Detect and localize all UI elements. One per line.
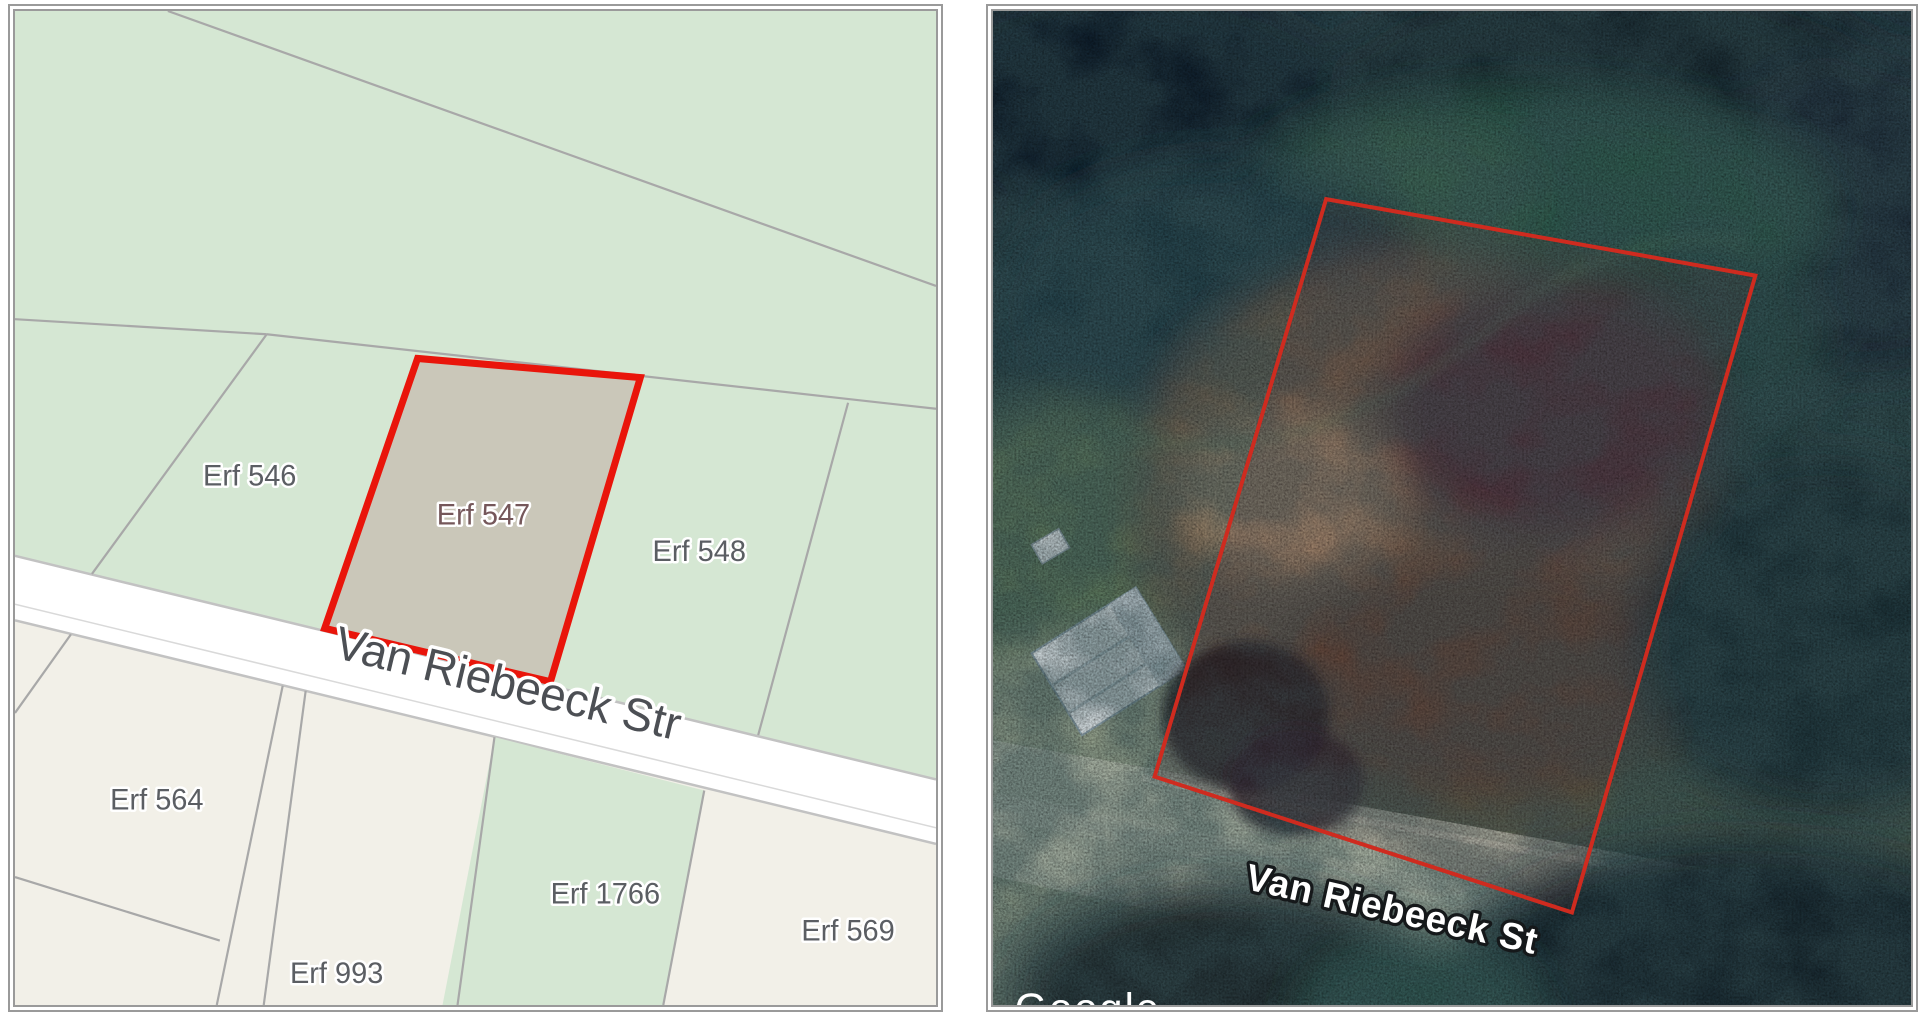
parcel-label-erf-547: Erf 547: [437, 500, 530, 532]
parcel-label-erf-546: Erf 546: [203, 460, 296, 492]
google-watermark: Google: [1015, 985, 1161, 1005]
cadastral-map-image: Erf 546 Erf 547 Erf 548 Erf 564 Erf 993 …: [15, 11, 936, 1005]
parcel-label-erf-548: Erf 548: [653, 536, 746, 568]
parcel-label-erf-569: Erf 569: [801, 915, 894, 947]
parcel-label-erf-993: Erf 993: [290, 958, 383, 990]
satellite-map-frame: Van Riebeeck St Google: [991, 9, 1913, 1007]
satellite-map-panel: Van Riebeeck St Google: [986, 4, 1918, 1012]
parcel-label-erf-1766: Erf 1766: [551, 878, 660, 910]
parcel-label-erf-564: Erf 564: [110, 785, 203, 817]
satellite-map-image: Van Riebeeck St Google: [993, 11, 1911, 1005]
cadastral-map-panel: Erf 546 Erf 547 Erf 548 Erf 564 Erf 993 …: [8, 4, 943, 1012]
cadastral-map-frame: Erf 546 Erf 547 Erf 548 Erf 564 Erf 993 …: [13, 9, 938, 1007]
